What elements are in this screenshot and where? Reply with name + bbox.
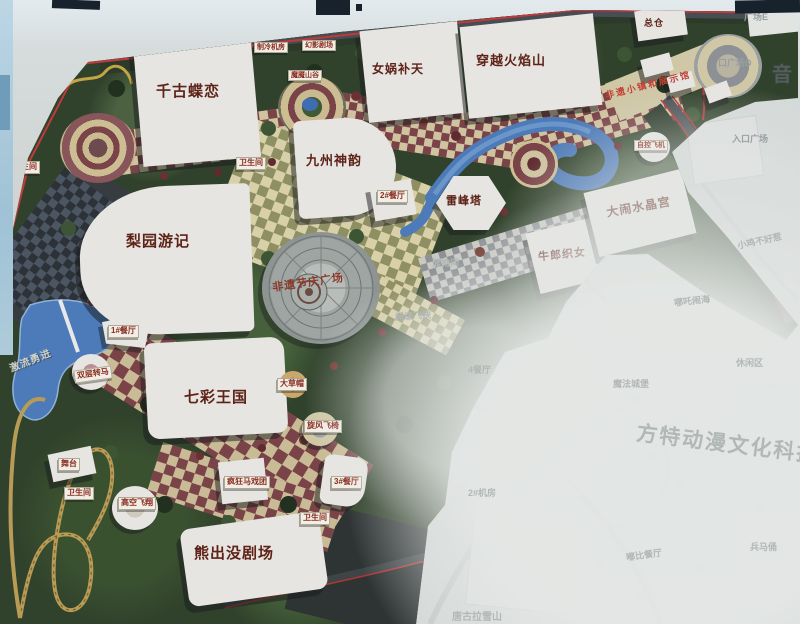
frame-clip-top-middle <box>316 0 350 15</box>
label-jiliu-yongjin: 激流勇进 <box>7 344 53 374</box>
faded-label-jifang2: 2#机房 <box>468 486 496 499</box>
attraction-label-liyuan-youji: 梨园游记 <box>126 230 190 251</box>
fountain-circle <box>510 140 558 188</box>
label-entrance-plaza: 入口广场 <box>732 132 768 145</box>
label-gaokong-feixiang: 高空飞翔 <box>118 497 156 510</box>
label-zongcang: 总仓 <box>644 16 664 29</box>
label-huanying-juchang: 幻影剧场 <box>302 40 336 51</box>
faded-label-chaoji-feixia: 超级飞侠 <box>395 308 432 323</box>
board-edge-blue-patch <box>0 75 10 130</box>
carousel-plaza-ring <box>60 113 136 183</box>
label-xuanfeng-feiyi: 旋风飞椅 <box>304 420 342 433</box>
attraction-label-qiangu-dielian: 千古蝶恋 <box>156 80 220 101</box>
faded-label-bingmayong: 兵马俑 <box>750 540 777 553</box>
label-moyan-shangu: 魔魇山谷 <box>288 70 322 81</box>
attraction-label-chuanyue-huoyanshan: 穿越火焰山 <box>476 50 546 69</box>
attraction-label-nvwa-butian: 女娲补天 <box>372 60 424 77</box>
attraction-label-qicai-wangguo: 七彩王国 <box>184 386 248 407</box>
label-dacaomao: 大草帽 <box>277 378 307 391</box>
label-toilet-south: 卫生间 <box>300 512 330 525</box>
label-stage: 舞台 <box>58 458 80 471</box>
label-fengkuang-maxituan: 疯狂马戏团 <box>224 476 270 489</box>
label-toilet-north: 卫生间 <box>236 157 266 170</box>
faded-label-restaurant-4: 4餐厅 <box>468 363 491 376</box>
park-map-photo: 千古蝶恋 女娲补天 穿越火焰山 九州神韵 梨园游记 雷峰塔 牛郎织女 大闹水晶宫… <box>0 0 800 624</box>
label-restaurant-2: 2#餐厅 <box>377 190 408 203</box>
frame-clip-top-right <box>735 0 800 14</box>
garden-pond <box>302 98 318 111</box>
label-restaurant-3: 3#餐厅 <box>331 476 362 489</box>
label-toilet-stage: 卫生间 <box>64 487 94 500</box>
label-zhileng-jifang: 制冷机房 <box>254 42 288 53</box>
faded-label-xiuxianqu: 休闲区 <box>736 356 763 369</box>
frame-clip-top-middle-2 <box>356 4 362 11</box>
attraction-label-jiuzhou-shenyun: 九州神韵 <box>306 150 362 169</box>
frame-clip-top-left <box>52 0 100 10</box>
faded-label-tanggula: 唐古拉雪山 <box>452 608 502 623</box>
faded-label-chuwujian: 储物间 <box>432 256 459 269</box>
attraction-label-leifengta: 雷峰塔 <box>446 192 482 208</box>
faded-label-mofa-chengbao: 魔法城堡 <box>613 377 649 390</box>
label-restaurant-1: 1#餐厅 <box>108 325 139 338</box>
building-qiangu-dielian <box>133 35 261 167</box>
edge-label-yin: 音 <box>772 58 792 87</box>
label-plaza-d: 口广场D <box>718 56 752 69</box>
attraction-label-xiongchumo-theater: 熊出没剧场 <box>194 542 274 563</box>
label-zikong-feiji: 自控飞机 <box>634 140 668 151</box>
board-edge-left <box>0 0 13 355</box>
